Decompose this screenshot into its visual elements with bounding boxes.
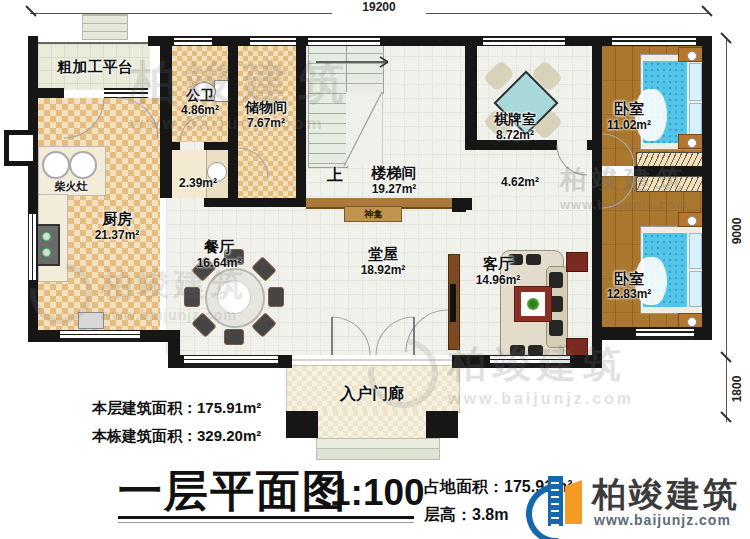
room-label-kitchen: 厨房 [84, 210, 150, 229]
floor-height: 层高：3.8m [424, 505, 508, 526]
room-area-hallway: 4.62m² [490, 175, 550, 189]
site-area-label: 占地面积： [424, 478, 504, 495]
stair-break-line [344, 92, 382, 166]
room-label-storage: 储物间 [234, 99, 298, 117]
room-area-kitchen: 21.37m² [84, 228, 150, 242]
room-area-storage: 7.67m² [234, 116, 298, 130]
title-underline [118, 516, 414, 519]
logo-building-blue [548, 476, 563, 526]
floor-plan-page: 19200 9000 1800 神龛 [0, 0, 750, 539]
room-label-wood-stove: 柴火灶 [38, 179, 104, 194]
dimension-right-lower-value: 1800 [730, 358, 744, 420]
area-stats: 本层建筑面积：175.91m² 本栋建筑面积：329.20m² [92, 394, 261, 450]
room-label-bedroom1: 卧室 [600, 100, 658, 119]
dimension-line-right-lower [726, 362, 727, 422]
title-underline-thin [118, 522, 414, 523]
building-area-value: 329.20m² [197, 427, 261, 444]
floor-area-label: 本层建筑面积： [92, 399, 197, 416]
page-title: 一层平面图 [118, 462, 348, 521]
room-label-porch: 入户门廊 [304, 384, 440, 405]
floor-height-value: 3.8m [472, 506, 508, 523]
brand-logo-icon [526, 476, 588, 536]
brand-url: www.baijunjz.com [594, 512, 731, 528]
building-area-label: 本栋建筑面积： [92, 427, 197, 444]
room-area-bedroom1: 11.02m² [598, 118, 660, 132]
stairs-up-label: 上 [320, 165, 350, 186]
room-label-hall: 堂屋 [352, 245, 414, 264]
logo-building-orange [565, 480, 582, 524]
room-label-platform: 粗加工平台 [40, 58, 150, 77]
dimension-line-right-upper [726, 40, 727, 362]
room-label-dining: 餐厅 [188, 238, 250, 257]
room-area-stairwell: 19.27m² [362, 182, 426, 196]
floor-area-value: 175.91m² [197, 399, 261, 416]
room-area-living: 14.96m² [468, 273, 528, 287]
room-area-corridor: 2.39m² [166, 176, 230, 190]
room-label-gameroom: 棋牌室 [486, 111, 544, 129]
room-area-bath: 4.86m² [170, 103, 230, 117]
dimension-right-upper-value: 9000 [730, 200, 744, 262]
room-label-stairwell: 楼梯间 [362, 164, 426, 183]
stair-up-arrow [316, 57, 388, 67]
dimension-top-value: 19200 [332, 0, 426, 14]
room-area-bedroom2: 12.83m² [598, 287, 660, 301]
floor-height-label: 层高： [424, 506, 472, 523]
room-area-gameroom: 8.72m² [486, 128, 544, 142]
scale-label: 1:100 [330, 472, 425, 514]
room-area-hall: 18.92m² [352, 263, 414, 277]
room-area-dining: 16.64m² [188, 256, 250, 270]
room-label-living: 客厅 [468, 255, 528, 274]
